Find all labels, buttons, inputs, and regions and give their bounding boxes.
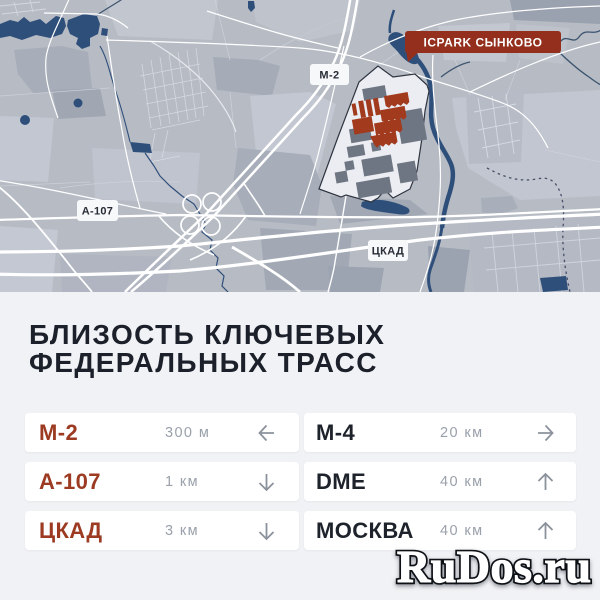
svg-text:ЦКАД: ЦКАД: [372, 246, 405, 258]
svg-text:ICPARK СЫНКОВО: ICPARK СЫНКОВО: [424, 36, 543, 50]
svg-text:А-107: А-107: [82, 206, 113, 218]
svg-text:RuDos.ru: RuDos.ru: [397, 541, 591, 592]
svg-text:М-2: М-2: [319, 70, 339, 82]
